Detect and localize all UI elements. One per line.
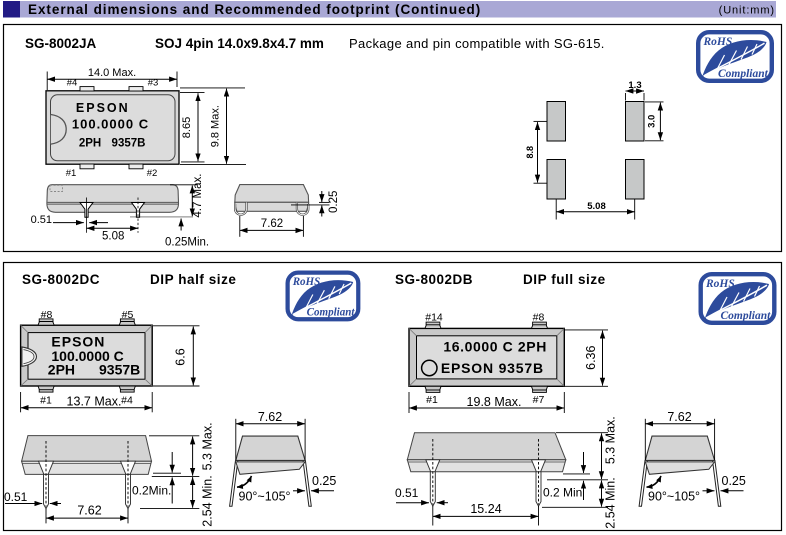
svg-text:8.65: 8.65 [181,117,193,138]
svg-text:5.08: 5.08 [102,231,124,243]
svg-text:0.2 Min: 0.2 Min [543,486,582,500]
svg-text:100.0000 C: 100.0000 C [72,117,149,132]
svg-text:9357B: 9357B [112,137,146,149]
svg-text:0.51: 0.51 [4,490,28,504]
svg-text:5.3 Max.: 5.3 Max. [604,416,618,464]
svg-text:DIP half size: DIP half size [150,272,236,287]
svg-text:13.7 Max.: 13.7 Max. [67,394,122,408]
svg-text:#5: #5 [122,309,134,321]
svg-text:6.6: 6.6 [174,348,188,365]
svg-text:SOJ 4pin 14.0x9.8x4.7 mm: SOJ 4pin 14.0x9.8x4.7 mm [155,36,324,51]
svg-text:5.08: 5.08 [587,201,606,212]
svg-text:2PH: 2PH [48,362,75,378]
svg-text:#1: #1 [66,168,77,179]
svg-text:#8: #8 [41,309,53,321]
svg-text:0.51: 0.51 [31,214,52,226]
svg-text:SG-8002DB: SG-8002DB [395,272,473,287]
svg-text:#1: #1 [40,394,52,406]
svg-text:#8: #8 [533,311,545,323]
svg-text:14.0 Max.: 14.0 Max. [88,67,136,79]
svg-text:#4: #4 [67,77,78,88]
svg-text:#4: #4 [121,394,133,406]
svg-text:3.0: 3.0 [647,115,658,128]
svg-text:#2: #2 [147,168,158,179]
svg-text:9357B: 9357B [99,362,140,378]
svg-text:5.3 Max.: 5.3 Max. [201,422,215,470]
svg-text:7.62: 7.62 [261,218,283,230]
svg-text:16.0000 C 2PH: 16.0000 C 2PH [443,339,547,355]
svg-text:6.36: 6.36 [584,345,598,369]
svg-text:EPSON: EPSON [51,334,105,350]
svg-text:Package and pin compatible wit: Package and pin compatible with SG-615. [349,36,605,51]
svg-text:#7: #7 [533,394,545,406]
svg-text:DIP full size: DIP full size [523,272,606,287]
svg-text:0.25Min.: 0.25Min. [165,236,209,248]
svg-text:8.8: 8.8 [525,146,535,159]
svg-text:19.8 Max.: 19.8 Max. [467,395,522,409]
svg-text:15.24: 15.24 [470,502,501,516]
svg-text:External dimensions and Recomm: External dimensions and Recommended foot… [28,2,481,17]
svg-text:9.8 Max.: 9.8 Max. [210,105,222,147]
svg-text:2.54 Min.: 2.54 Min. [201,475,215,526]
svg-text:2.54 Min.: 2.54 Min. [604,477,618,528]
svg-text:EPSON 9357B: EPSON 9357B [441,360,544,376]
svg-text:0.51: 0.51 [395,486,419,500]
svg-text:SG-8002DC: SG-8002DC [22,272,100,287]
svg-text:1.3: 1.3 [628,80,641,91]
svg-text:(Unit:mm): (Unit:mm) [719,5,775,17]
svg-text:#14: #14 [425,311,443,323]
svg-text:2PH: 2PH [79,137,101,149]
svg-text:SG-8002JA: SG-8002JA [25,36,97,51]
svg-text:4.7 Max.: 4.7 Max. [192,174,204,218]
svg-text:#1: #1 [426,394,438,406]
svg-text:0.2Min.: 0.2Min. [132,484,171,498]
svg-text:7.62: 7.62 [77,504,101,518]
svg-text:#3: #3 [148,77,159,88]
svg-text:0.25: 0.25 [328,191,340,213]
svg-text:EPSON: EPSON [76,101,130,115]
